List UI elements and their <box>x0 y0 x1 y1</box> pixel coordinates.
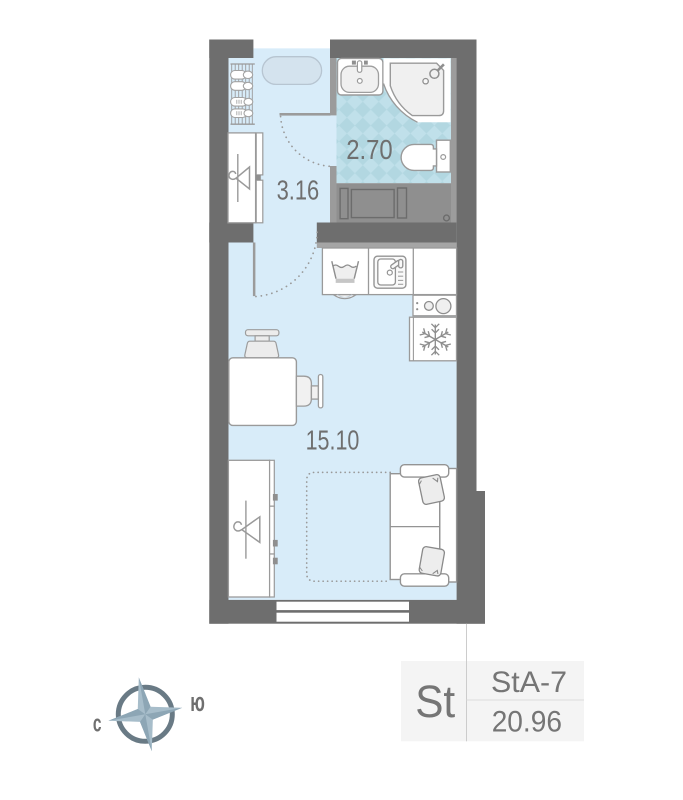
svg-text:с: с <box>93 711 102 738</box>
svg-text:ю: ю <box>190 687 205 717</box>
svg-text:St: St <box>415 676 455 727</box>
svg-text:StA-7: StA-7 <box>491 666 567 699</box>
svg-text:20.96: 20.96 <box>492 706 562 739</box>
svg-text:15.10: 15.10 <box>306 425 360 456</box>
svg-text:3.16: 3.16 <box>277 174 320 205</box>
svg-text:2.70: 2.70 <box>346 134 393 165</box>
